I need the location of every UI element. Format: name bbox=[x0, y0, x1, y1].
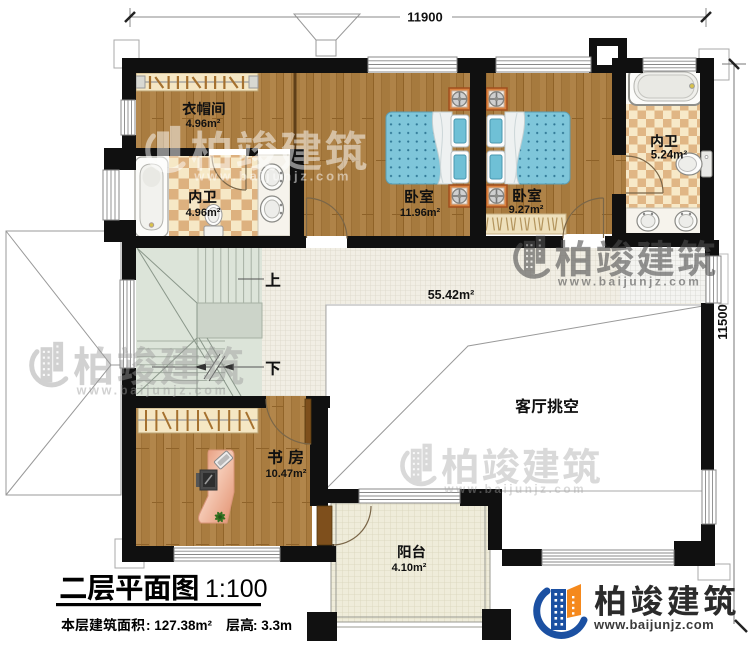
svg-text:: 127.38m²: : 127.38m² bbox=[146, 618, 213, 633]
svg-text:5.24m²: 5.24m² bbox=[651, 150, 688, 162]
svg-text:4.96m²: 4.96m² bbox=[186, 118, 221, 130]
svg-text:www.baijunjz.com: www.baijunjz.com bbox=[193, 168, 351, 183]
svg-text:: 3.3m: : 3.3m bbox=[253, 618, 292, 633]
svg-text:www.baijunjz.com: www.baijunjz.com bbox=[593, 617, 714, 632]
svg-text:www.baijunjz.com: www.baijunjz.com bbox=[76, 383, 229, 397]
svg-text:9.27m²: 9.27m² bbox=[509, 204, 544, 216]
svg-text:www.baijunjz.com: www.baijunjz.com bbox=[443, 483, 586, 496]
svg-text:10.47m²: 10.47m² bbox=[266, 468, 307, 480]
svg-text:11900: 11900 bbox=[407, 10, 442, 25]
svg-text:11500: 11500 bbox=[715, 304, 730, 339]
svg-text:1:100: 1:100 bbox=[205, 575, 268, 603]
svg-text:11.96m²: 11.96m² bbox=[400, 207, 441, 219]
svg-text:55.42m²: 55.42m² bbox=[428, 288, 475, 302]
svg-text:www.baijunjz.com: www.baijunjz.com bbox=[557, 274, 701, 288]
svg-text:4.96m²: 4.96m² bbox=[186, 207, 221, 219]
svg-text:4.10m²: 4.10m² bbox=[392, 562, 427, 574]
